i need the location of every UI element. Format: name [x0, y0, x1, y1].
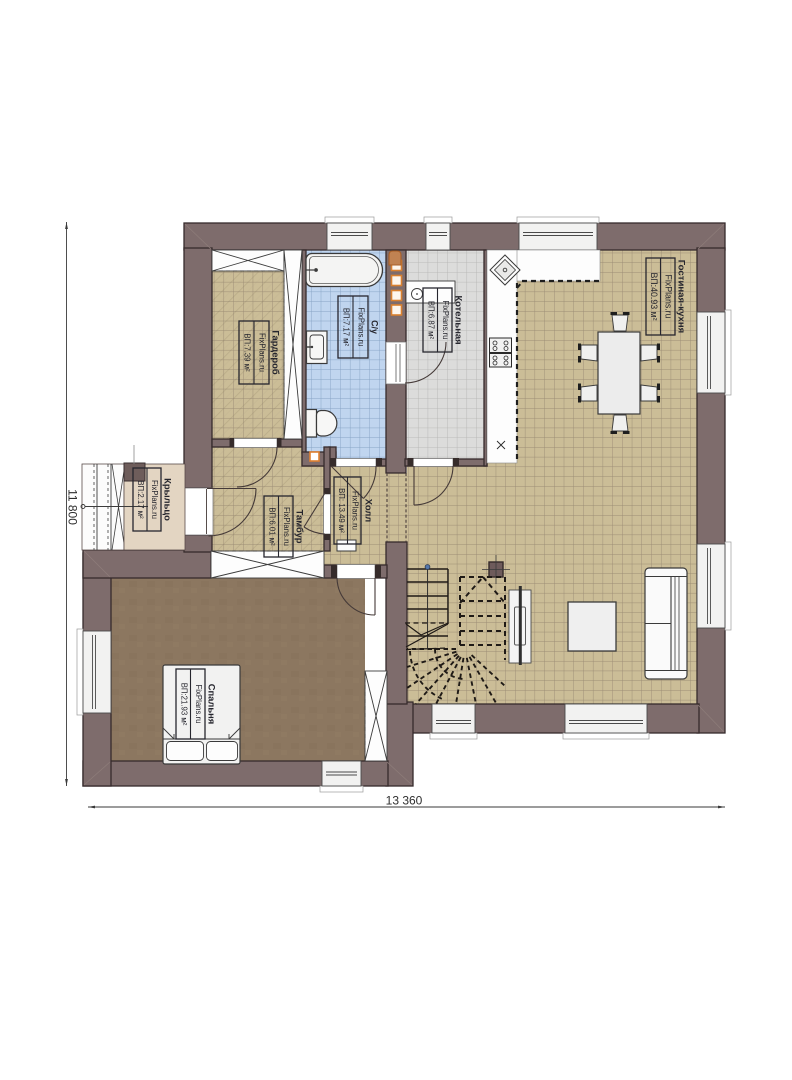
- svg-text:FixPlans.ru: FixPlans.ru: [282, 507, 291, 546]
- svg-text:FixPlans.ru: FixPlans.ru: [194, 685, 203, 724]
- svg-text:Спальня: Спальня: [207, 684, 218, 725]
- svg-text:13 360: 13 360: [386, 794, 423, 808]
- svg-text:FixPlans.ru: FixPlans.ru: [150, 480, 159, 519]
- svg-text:FixPlans.ru: FixPlans.ru: [664, 275, 674, 319]
- svg-text:Котельная: Котельная: [454, 295, 465, 344]
- svg-text:FixPlans.ru: FixPlans.ru: [350, 491, 359, 530]
- svg-text:Холл: Холл: [364, 499, 375, 523]
- svg-text:Крыльцо: Крыльцо: [163, 478, 174, 521]
- svg-text:11 800: 11 800: [66, 489, 80, 525]
- svg-text:ВП:6.01 м²: ВП:6.01 м²: [267, 507, 276, 546]
- svg-text:ВП:7.17 м²: ВП:7.17 м²: [341, 308, 350, 347]
- svg-text:Гостиная-кухня: Гостиная-кухня: [675, 260, 686, 334]
- svg-text:Гардероб: Гардероб: [271, 330, 282, 375]
- svg-text:Тамбур: Тамбур: [295, 509, 306, 543]
- svg-text:С/у: С/у: [370, 320, 380, 334]
- svg-text:ВП:2.17 м²: ВП:2.17 м²: [136, 480, 145, 519]
- svg-text:FixPlans.ru: FixPlans.ru: [441, 301, 450, 340]
- svg-text:FixPlans.ru: FixPlans.ru: [356, 308, 365, 347]
- svg-text:ВП:6.87 м²: ВП:6.87 м²: [426, 301, 435, 340]
- svg-text:ВП:40.93 м²: ВП:40.93 м²: [649, 272, 659, 320]
- svg-text:ВП: 13.49 м²: ВП: 13.49 м²: [337, 488, 346, 533]
- svg-text:ВП:21.93 м²: ВП:21.93 м²: [179, 683, 188, 726]
- svg-text:FixPlans.ru: FixPlans.ru: [257, 333, 266, 372]
- svg-text:ВП:7.39 м²: ВП:7.39 м²: [242, 333, 251, 372]
